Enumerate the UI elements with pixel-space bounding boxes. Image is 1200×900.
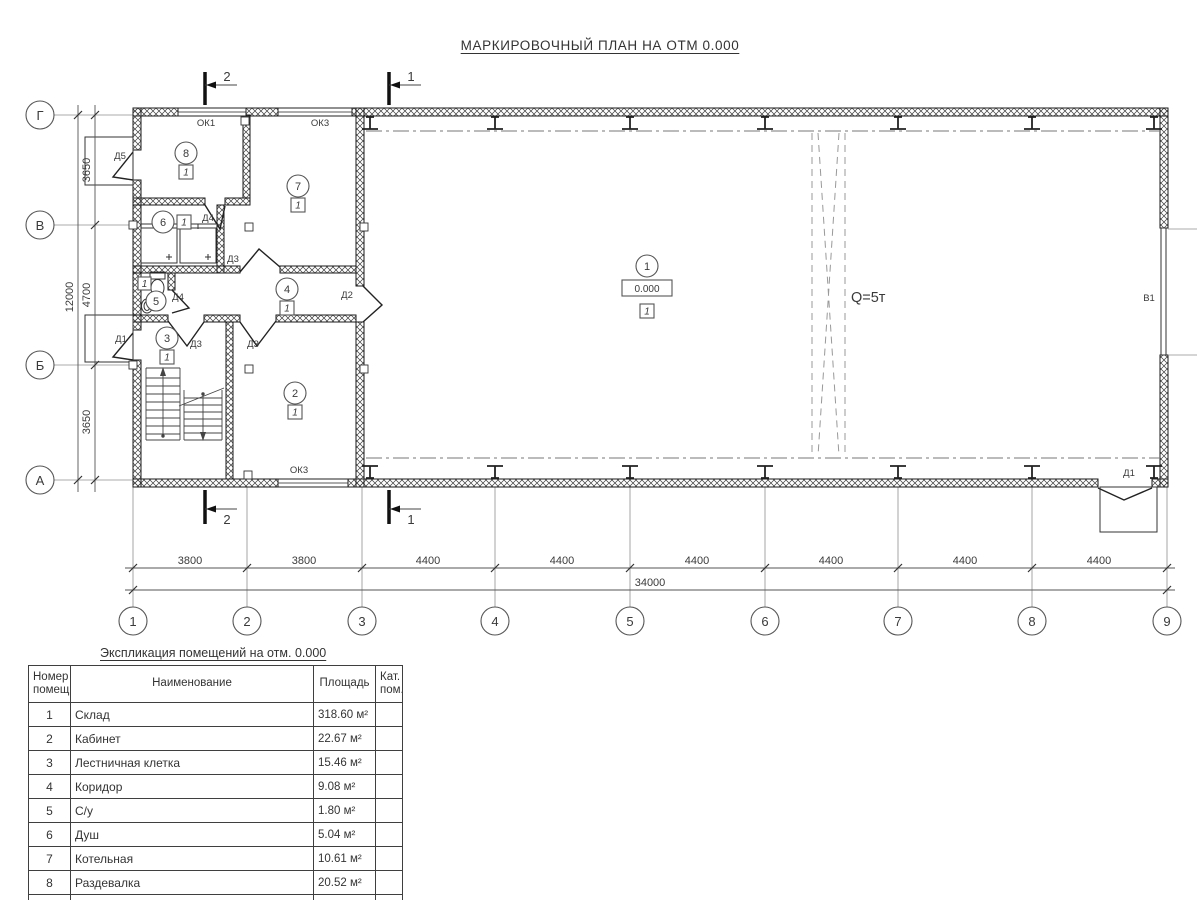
room-number: 1 <box>644 261 650 273</box>
room-area: 1.80 м² <box>314 799 376 823</box>
dim-label: 4400 <box>416 555 440 567</box>
door-label: Д3 <box>190 339 202 350</box>
room-name: Склад <box>71 703 314 727</box>
room-name: Кабинет <box>71 727 314 751</box>
room-category <box>376 847 403 871</box>
axis-col-label: 9 <box>1163 614 1170 629</box>
room-category <box>376 727 403 751</box>
axis-row-label: Г <box>36 108 43 123</box>
table-row: 3 Лестничная клетка 15.46 м² <box>29 751 403 775</box>
door-label: Д4 <box>202 213 214 224</box>
dim-label: 3800 <box>178 555 202 567</box>
grid-lines <box>54 115 1167 607</box>
room-category <box>376 775 403 799</box>
dim-label: 4400 <box>1087 555 1111 567</box>
room-num: 5 <box>29 799 71 823</box>
dim-label: 4700 <box>81 283 93 307</box>
col-header-name: Наименование <box>71 666 314 703</box>
room-area: 22.67 м² <box>314 727 376 751</box>
axis-row-label: В <box>36 218 45 233</box>
section-label: 2 <box>223 69 230 84</box>
table-row: 4 Коридор 9.08 м² <box>29 775 403 799</box>
section-label: 1 <box>407 69 414 84</box>
windows: ОК1 ОК3 ОК3 В1 <box>178 108 1197 487</box>
schedule-caption: Экспликация помещений на отм. 0.000 <box>100 646 403 660</box>
doors: Д5 Д1 Д4 Д3 Д4 Д3 Д3 Д2 Д1 <box>113 151 1152 500</box>
room-number: 6 <box>160 217 166 229</box>
room-name: Раздевалка <box>71 871 314 895</box>
schedule-header-row: Номер помещ. Наименование Площадь Кат. п… <box>29 666 403 703</box>
axis-col-label: 4 <box>491 614 498 629</box>
floor-type-mark: 1 <box>295 201 301 212</box>
col-header-area: Площадь <box>314 666 376 703</box>
room-num: 8 <box>29 871 71 895</box>
room-name: Душ <box>71 823 314 847</box>
dim-label: 4400 <box>550 555 574 567</box>
room-num: 1 <box>29 703 71 727</box>
room-number: 3 <box>164 333 170 345</box>
table-row: 2 Кабинет 22.67 м² <box>29 727 403 751</box>
room-number: 7 <box>295 181 301 193</box>
axis-col-label: 2 <box>243 614 250 629</box>
table-row: 1 Склад 318.60 м² <box>29 703 403 727</box>
dim-total-label: 12000 <box>64 282 76 313</box>
window-label: ОК1 <box>197 118 215 129</box>
floor-type-mark: 1 <box>284 304 290 315</box>
room-area: 9.08 м² <box>314 775 376 799</box>
floor-plan: ОК1 ОК3 ОК3 В1 Д5 Д1 Д4 Д3 Д4 Д3 Д3 Д2 Д… <box>0 0 1200 645</box>
room-num: 3 <box>29 751 71 775</box>
section-mark-1-bottom: 1 <box>389 490 421 527</box>
total-area: 403.78 м² <box>314 895 376 900</box>
room-number: 8 <box>183 148 189 160</box>
floor-type-mark: 1 <box>164 353 170 364</box>
floor-type-mark: 1 <box>644 307 650 318</box>
room-name: С/у <box>71 799 314 823</box>
room-category <box>376 871 403 895</box>
shower-stalls <box>141 224 216 263</box>
window-ok3-top <box>278 108 352 116</box>
drawing-sheet: МАРКИРОВОЧНЫЙ ПЛАН НА ОТМ 0.000 <box>0 0 1200 900</box>
dim-total-label: 34000 <box>635 577 666 589</box>
floor-type-mark: 1 <box>142 279 148 290</box>
dim-label: 3800 <box>292 555 316 567</box>
dim-label: 4400 <box>685 555 709 567</box>
floor-type-mark: 1 <box>292 408 298 419</box>
floor-type-mark: 1 <box>181 218 187 229</box>
section-mark-2-bottom: 2 <box>205 490 237 527</box>
room-number: 2 <box>292 388 298 400</box>
room-num: 4 <box>29 775 71 799</box>
room-category <box>376 799 403 823</box>
gate-v1 <box>1161 228 1197 355</box>
door-label: Д4 <box>172 292 184 303</box>
schedule-total-row: ИТОГО: 403.78 м² <box>29 895 403 900</box>
schedule-table: Номер помещ. Наименование Площадь Кат. п… <box>28 665 403 900</box>
door-label: Д1 <box>115 334 127 345</box>
total-label: ИТОГО: <box>71 895 314 900</box>
axis-col-label: 5 <box>626 614 633 629</box>
window-label: ОК3 <box>290 465 308 476</box>
table-row: 8 Раздевалка 20.52 м² <box>29 871 403 895</box>
drawing-title: МАРКИРОВОЧНЫЙ ПЛАН НА ОТМ 0.000 <box>461 38 740 53</box>
door-label: Д3 <box>247 339 259 350</box>
dim-label: 3650 <box>81 158 93 182</box>
crane-bridge <box>812 133 845 456</box>
stairs <box>146 367 224 441</box>
table-row: 7 Котельная 10.61 м² <box>29 847 403 871</box>
room-category <box>376 823 403 847</box>
room-area: 5.04 м² <box>314 823 376 847</box>
door-label: Д5 <box>114 151 126 162</box>
floor-type-mark: 1 <box>183 168 189 179</box>
door-label: Д1 <box>1123 468 1135 479</box>
page-title: МАРКИРОВОЧНЫЙ ПЛАН НА ОТМ 0.000 <box>0 38 1200 53</box>
room-marks: 1 0.000 1 2 1 3 1 4 1 5 1 <box>138 142 672 419</box>
total-category-cell <box>376 895 403 900</box>
room-area: 10.61 м² <box>314 847 376 871</box>
section-label: 2 <box>223 512 230 527</box>
col-header-category: Кат. пом. <box>376 666 403 703</box>
gate-label: В1 <box>1143 293 1155 304</box>
room-num: 2 <box>29 727 71 751</box>
door-label: Д3 <box>227 254 239 265</box>
room-area: 20.52 м² <box>314 871 376 895</box>
room-name: Лестничная клетка <box>71 751 314 775</box>
door-label: Д2 <box>341 290 353 301</box>
axis-col-label: 6 <box>761 614 768 629</box>
axis-row-label: А <box>36 473 45 488</box>
axis-col-label: 3 <box>358 614 365 629</box>
section-mark-1-top: 1 <box>389 69 421 105</box>
room-number: 5 <box>153 296 159 308</box>
room-name: Коридор <box>71 775 314 799</box>
dim-label: 3650 <box>81 410 93 434</box>
crane: Q=5т <box>366 131 1160 458</box>
window-ok1 <box>178 108 246 116</box>
room-num: 7 <box>29 847 71 871</box>
crane-capacity-label: Q=5т <box>851 290 886 306</box>
col-header-number: Номер помещ. <box>29 666 71 703</box>
room-number: 4 <box>284 284 290 296</box>
room-area: 15.46 м² <box>314 751 376 775</box>
room-name: Котельная <box>71 847 314 871</box>
table-row: 6 Душ 5.04 м² <box>29 823 403 847</box>
dim-label: 4400 <box>819 555 843 567</box>
section-mark-2-top: 2 <box>205 69 237 105</box>
axis-col-label: 8 <box>1028 614 1035 629</box>
room-category <box>376 751 403 775</box>
axis-col-label: 1 <box>129 614 136 629</box>
dim-label: 4400 <box>953 555 977 567</box>
window-ok3-bottom <box>278 479 348 487</box>
elevation-mark: 0.000 <box>634 284 659 295</box>
room-area: 318.60 м² <box>314 703 376 727</box>
table-row: 5 С/у 1.80 м² <box>29 799 403 823</box>
axis-col-label: 7 <box>894 614 901 629</box>
room-schedule: Экспликация помещений на отм. 0.000 Номе… <box>28 646 403 900</box>
window-label: ОК3 <box>311 118 329 129</box>
axis-row-label: Б <box>36 358 45 373</box>
total-num-cell <box>29 895 71 900</box>
room-category <box>376 703 403 727</box>
room-num: 6 <box>29 823 71 847</box>
section-label: 1 <box>407 512 414 527</box>
